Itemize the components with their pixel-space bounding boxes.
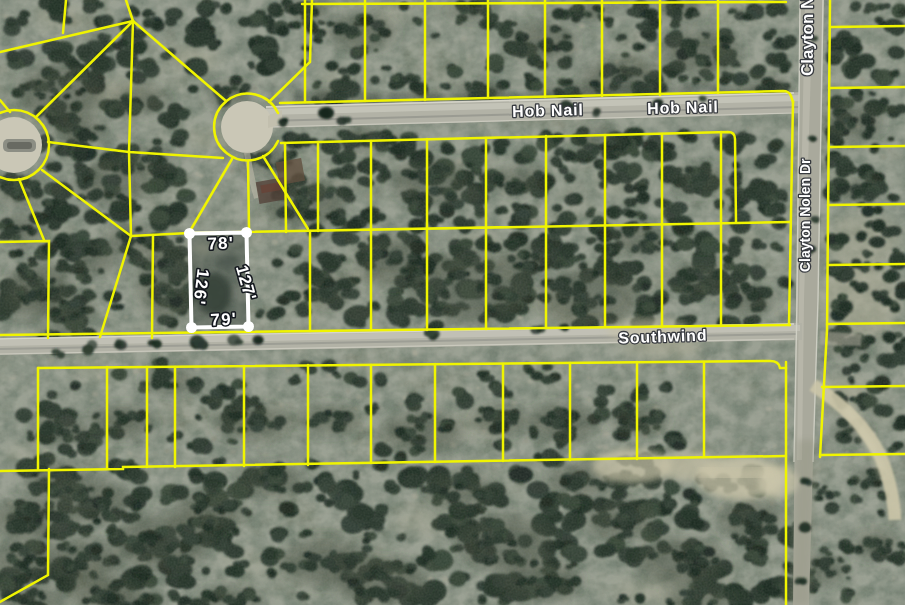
svg-text:79': 79' <box>210 309 238 329</box>
svg-text:Hob Nail: Hob Nail <box>647 98 719 117</box>
svg-text:Southwind: Southwind <box>618 326 708 346</box>
svg-text:Clayton Nolen Dr: Clayton Nolen Dr <box>798 0 817 76</box>
svg-text:78': 78' <box>207 234 234 254</box>
svg-text:Clayton Nolen Dr: Clayton Nolen Dr <box>797 158 813 272</box>
svg-text:Hob Nail: Hob Nail <box>512 101 584 120</box>
